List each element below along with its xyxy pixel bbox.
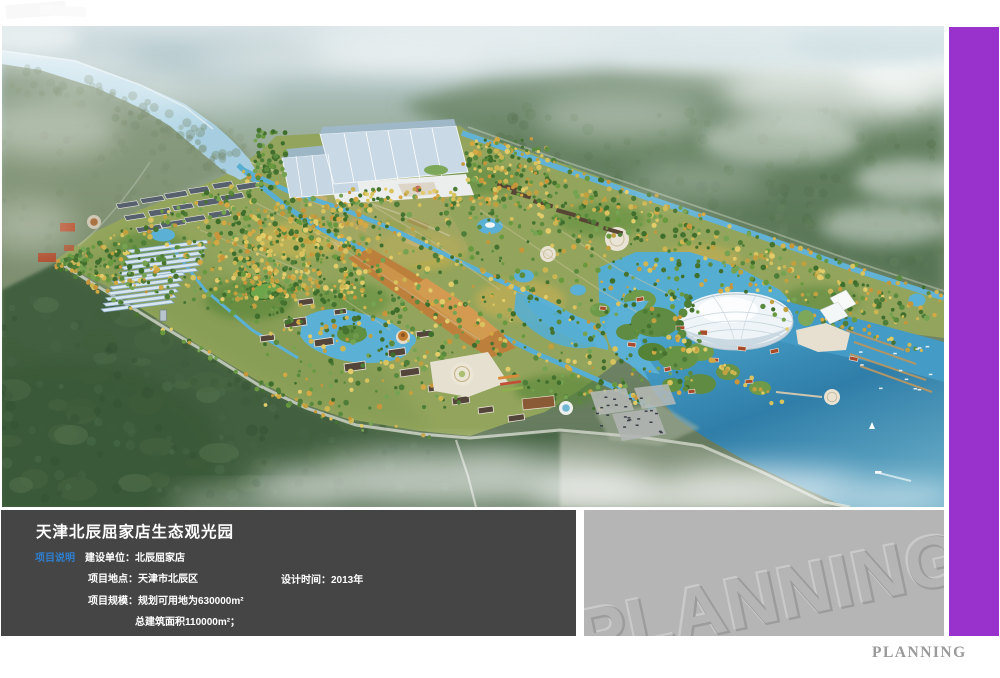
svg-text:PLANNING: PLANNING (584, 517, 944, 636)
